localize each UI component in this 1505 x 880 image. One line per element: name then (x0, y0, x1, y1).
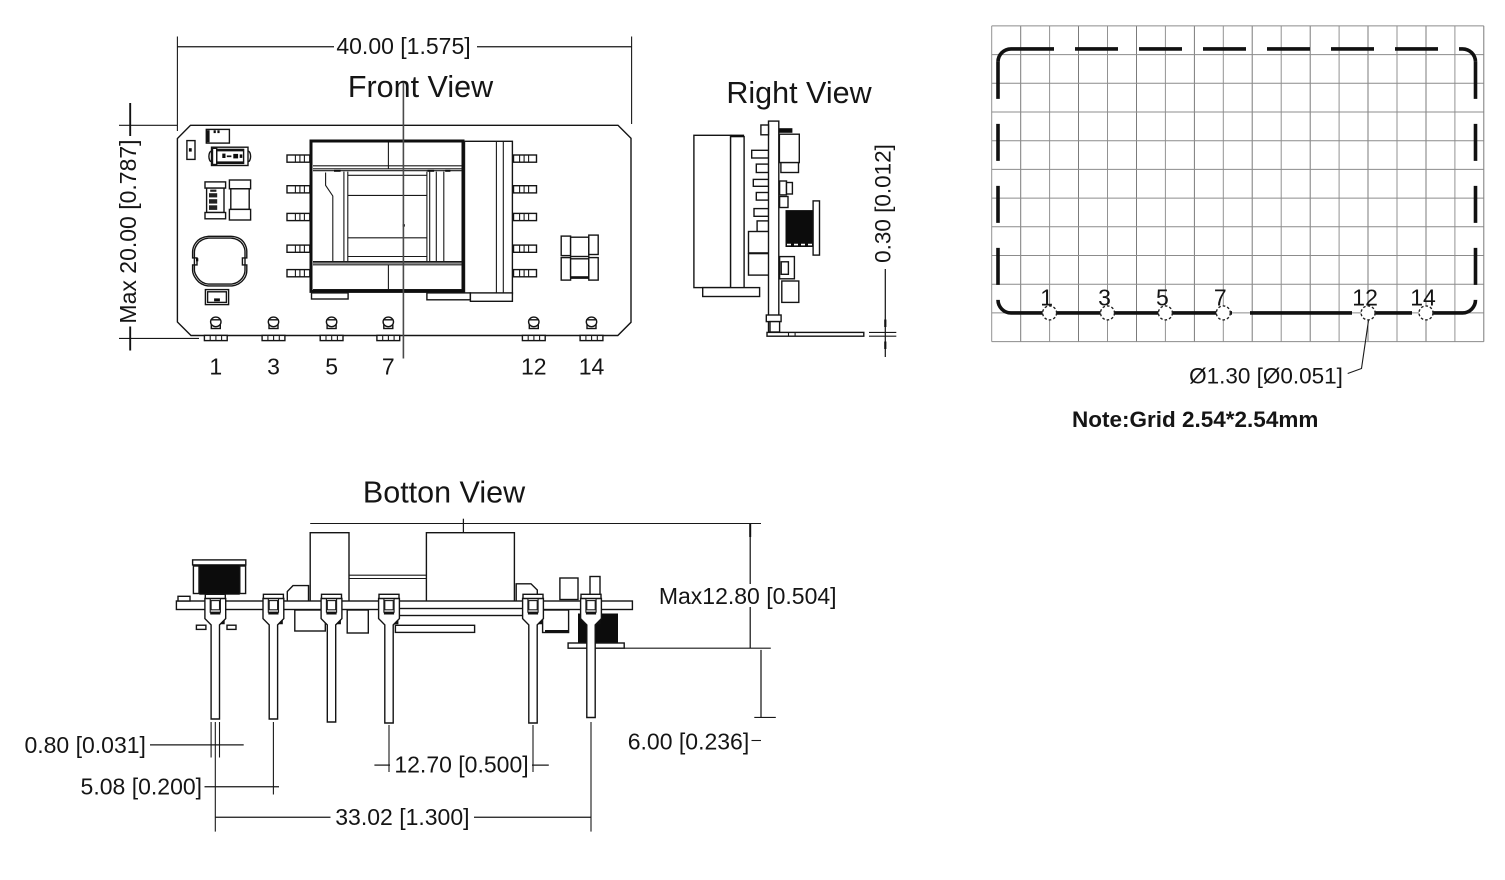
svg-text:3: 3 (267, 354, 280, 380)
svg-text:5: 5 (325, 354, 338, 380)
svg-text:Note:Grid 2.54*2.54mm: Note:Grid 2.54*2.54mm (1072, 407, 1318, 432)
svg-text:Botton View: Botton View (363, 476, 526, 510)
svg-text:0.30 [0.012]: 0.30 [0.012] (871, 144, 896, 263)
svg-text:5: 5 (1156, 285, 1169, 311)
svg-text:7: 7 (1214, 285, 1227, 311)
svg-text:40.00 [1.575]: 40.00 [1.575] (336, 33, 470, 59)
svg-text:3: 3 (1098, 285, 1111, 311)
svg-text:Right View: Right View (726, 76, 872, 110)
svg-text:6.00 [0.236]: 6.00 [0.236] (628, 729, 750, 755)
svg-text:12: 12 (1352, 285, 1378, 311)
svg-text:14: 14 (1410, 285, 1436, 311)
svg-text:0.80 [0.031]: 0.80 [0.031] (24, 732, 146, 758)
svg-text:Max 20.00 [0.787]: Max 20.00 [0.787] (115, 139, 141, 323)
svg-text:Front View: Front View (348, 70, 494, 104)
svg-text:1: 1 (1040, 285, 1053, 311)
svg-text:5.08 [0.200]: 5.08 [0.200] (81, 774, 203, 800)
svg-text:33.02 [1.300]: 33.02 [1.300] (335, 804, 469, 830)
svg-text:12: 12 (521, 354, 547, 380)
svg-text:12.70 [0.500]: 12.70 [0.500] (394, 751, 528, 777)
svg-text:7: 7 (382, 354, 395, 380)
svg-text:Ø1.30 [Ø0.051]: Ø1.30 [Ø0.051] (1189, 364, 1343, 389)
svg-text:1: 1 (209, 354, 222, 380)
svg-text:14: 14 (579, 354, 605, 380)
svg-text:Max12.80 [0.504]: Max12.80 [0.504] (659, 583, 837, 609)
